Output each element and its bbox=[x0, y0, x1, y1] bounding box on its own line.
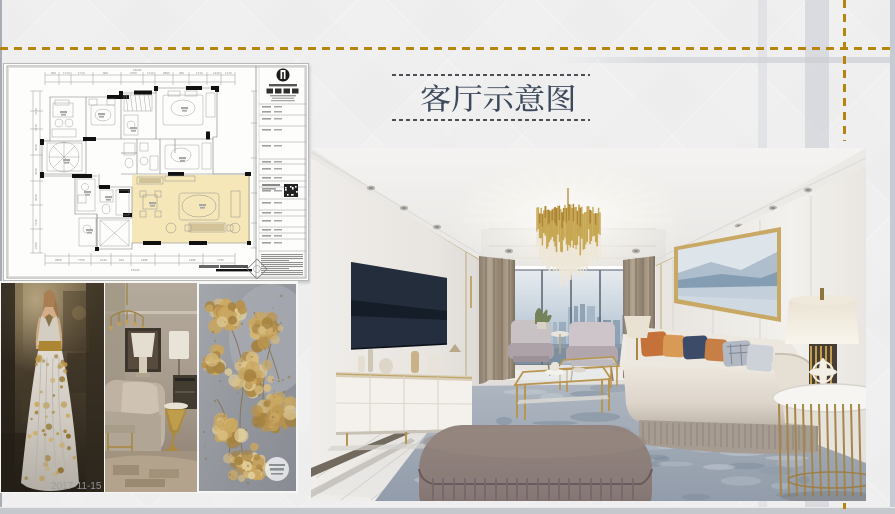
svg-text:15240: 15240 bbox=[131, 268, 140, 272]
svg-text:1485: 1485 bbox=[141, 258, 148, 262]
svg-text:15240: 15240 bbox=[133, 68, 142, 72]
svg-text:2860: 2860 bbox=[55, 258, 62, 262]
svg-text:7140: 7140 bbox=[34, 219, 38, 226]
svg-text:2700: 2700 bbox=[34, 242, 38, 249]
svg-text:1240: 1240 bbox=[213, 71, 220, 75]
svg-text:2130: 2130 bbox=[100, 258, 107, 262]
svg-text:3540: 3540 bbox=[34, 194, 38, 201]
svg-text:3540: 3540 bbox=[34, 168, 38, 175]
svg-text:7140: 7140 bbox=[34, 108, 38, 115]
svg-text:2860: 2860 bbox=[163, 71, 170, 75]
svg-text:2017-11-15: 2017-11-15 bbox=[51, 481, 102, 492]
svg-text:1710: 1710 bbox=[63, 71, 70, 75]
svg-text:7750: 7750 bbox=[217, 258, 224, 262]
svg-text:1710: 1710 bbox=[147, 71, 154, 75]
svg-text:910: 910 bbox=[119, 258, 124, 262]
svg-text:7750: 7750 bbox=[78, 258, 85, 262]
svg-text:1485: 1485 bbox=[189, 258, 196, 262]
svg-text:3540: 3540 bbox=[34, 144, 38, 151]
svg-text:1710: 1710 bbox=[225, 71, 232, 75]
svg-text:1710: 1710 bbox=[78, 71, 85, 75]
svg-text:900: 900 bbox=[51, 71, 56, 75]
svg-text:7140: 7140 bbox=[34, 124, 38, 131]
svg-text:900: 900 bbox=[103, 71, 108, 75]
svg-text:450: 450 bbox=[179, 71, 184, 75]
svg-text:1710: 1710 bbox=[196, 71, 203, 75]
